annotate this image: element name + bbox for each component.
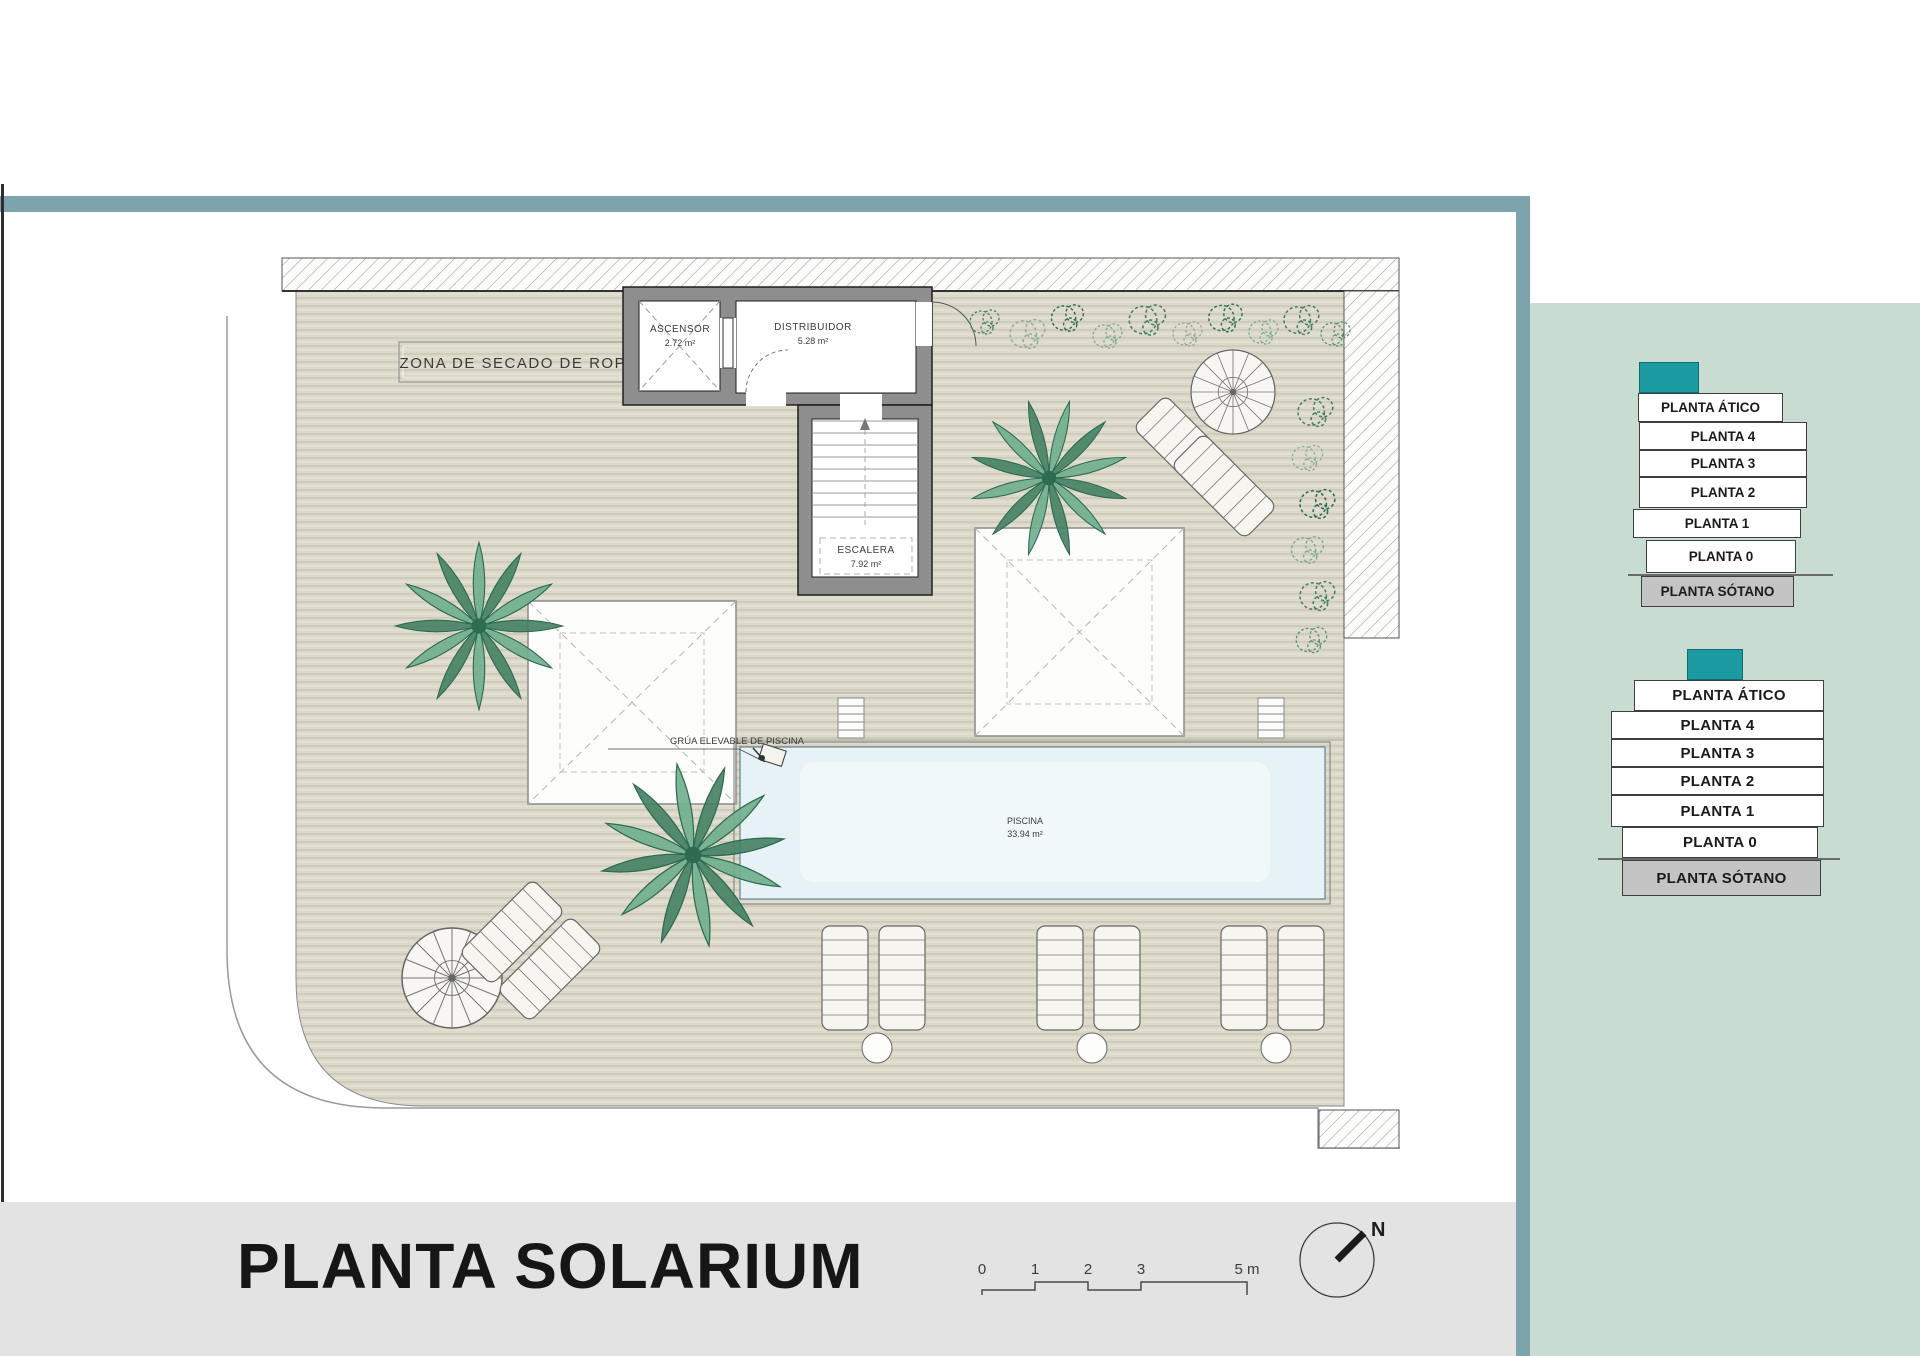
- scale-bar: 0 1 2 3 5 m: [962, 1258, 1272, 1308]
- current-floor-block[interactable]: [1687, 649, 1743, 680]
- floor-row-planta3[interactable]: PLANTA 3: [1611, 739, 1824, 767]
- floor-row-planta4[interactable]: PLANTA 4: [1639, 422, 1807, 450]
- floor-row-planta3[interactable]: PLANTA 3: [1639, 450, 1807, 477]
- stairs-label: ESCALERA: [837, 545, 894, 556]
- parasol: [1191, 350, 1275, 434]
- pool-steps-icon: [838, 698, 864, 738]
- floor-row-planta1[interactable]: PLANTA 1: [1633, 509, 1801, 538]
- floor-row-planta2[interactable]: PLANTA 2: [1611, 767, 1824, 795]
- current-floor-block[interactable]: [1639, 362, 1699, 393]
- skylight-left: [528, 601, 736, 804]
- svg-text:3: 3: [1137, 1261, 1145, 1278]
- floor-row-planta0[interactable]: PLANTA 0: [1622, 827, 1818, 858]
- frame-top-bar: [0, 196, 1530, 212]
- frame-right-bar: [1516, 196, 1530, 1356]
- floor-row-planta0[interactable]: PLANTA 0: [1646, 540, 1796, 573]
- swimming-pool: PISCINA 33.94 m²: [734, 742, 1330, 904]
- hall-area: 5.28 m²: [798, 336, 829, 346]
- svg-text:0: 0: [978, 1261, 986, 1278]
- stairs-area: 7.92 m²: [851, 559, 882, 569]
- svg-text:2: 2: [1084, 1261, 1092, 1278]
- floor-plan-drawing: ZONA DE SECADO DE ROPA PISCINA 33.94 m²: [0, 212, 1517, 1204]
- page: ZONA DE SECADO DE ROPA PISCINA 33.94 m²: [0, 0, 1920, 1356]
- page-title: PLANTA SOLARIUM: [237, 1234, 864, 1298]
- hall-label: DISTRIBUIDOR: [774, 322, 852, 333]
- north-arrow-icon: N: [1292, 1212, 1407, 1312]
- pool-hoist-label: GRÚA ELEVABLE DE PISCINA: [670, 736, 805, 747]
- floor-row-sotano[interactable]: PLANTA SÓTANO: [1641, 576, 1794, 607]
- elevator-area: 2.72 m²: [665, 338, 696, 348]
- pool-label: PISCINA: [1007, 816, 1043, 826]
- bottom-wall-hatch: [1319, 1110, 1399, 1148]
- north-label: N: [1371, 1219, 1385, 1241]
- floor-row-planta1[interactable]: PLANTA 1: [1611, 795, 1824, 827]
- drying-zone-label: ZONA DE SECADO DE ROPA: [400, 355, 637, 372]
- floor-row-atico[interactable]: PLANTA ÁTICO: [1634, 680, 1824, 711]
- floor-row-planta4[interactable]: PLANTA 4: [1611, 711, 1824, 739]
- top-wall-hatch: [282, 258, 1399, 291]
- right-wall-hatch: [1344, 291, 1399, 638]
- svg-text:1: 1: [1031, 1261, 1039, 1278]
- svg-text:5 m: 5 m: [1234, 1261, 1259, 1278]
- pool-area-label: 33.94 m²: [1007, 829, 1043, 839]
- hall-room: [736, 301, 916, 393]
- pool-steps-icon: [1258, 698, 1284, 738]
- floor-row-planta2[interactable]: PLANTA 2: [1639, 477, 1807, 508]
- elevator-label: ASCENSOR: [650, 324, 710, 335]
- skylight-right: [975, 528, 1184, 736]
- floor-row-atico[interactable]: PLANTA ÁTICO: [1638, 393, 1783, 422]
- floor-row-sotano[interactable]: PLANTA SÓTANO: [1622, 860, 1821, 896]
